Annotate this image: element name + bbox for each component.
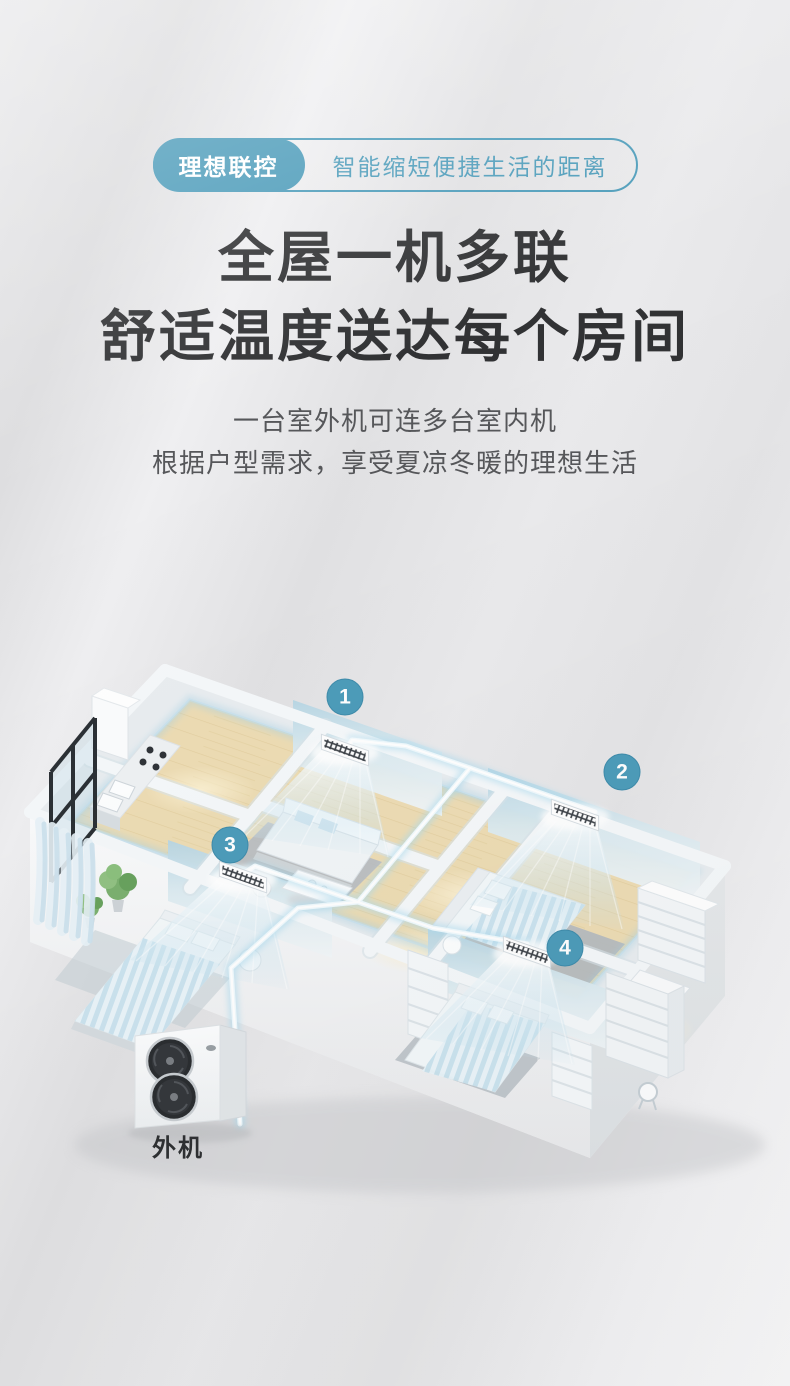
chair [639,1083,657,1101]
feature-pill-tag: 理想联控 [153,139,305,191]
page-subtitle-line1: 一台室外机可连多台室内机 [0,400,790,442]
house-illustration: 1 2 3 4 [0,600,790,1360]
indoor-unit-2 [541,799,609,831]
badge-bar: 理想联控 智能缩短便捷生活的距离 [0,0,790,192]
outdoor-unit-label: 外机 [152,1134,204,1162]
brand-mark [206,1045,216,1051]
page-title: 全屋一机多联 舒适温度送达每个房间 [0,218,790,376]
humidifier [443,936,461,954]
feature-pill: 理想联控 智能缩短便捷生活的距离 [153,138,638,192]
unit-badge-2: 2 [604,754,640,790]
outdoor-fan-bottom [151,1074,197,1120]
curtains [38,822,93,941]
unit-badge-1: 1 [327,679,363,715]
unit-badge-3: 3 [212,827,248,863]
page-title-line1: 全屋一机多联 [0,218,790,297]
page-subtitle-line2: 根据户型需求，享受夏凉冬暖的理想生活 [0,442,790,484]
page-title-line2: 舒适温度送达每个房间 [0,297,790,376]
unit-badge-1-number: 1 [339,686,351,709]
unit-badge-2-number: 2 [616,761,628,784]
unit-badge-3-number: 3 [224,834,236,857]
page-subtitle: 一台室外机可连多台室内机 根据户型需求，享受夏凉冬暖的理想生活 [0,400,790,484]
promo-page: 理想联控 智能缩短便捷生活的距离 全屋一机多联 舒适温度送达每个房间 一台室外机… [0,0,790,1386]
feature-pill-tagline: 智能缩短便捷生活的距离 [305,140,636,190]
unit-badge-4: 4 [547,930,583,966]
unit-badge-4-number: 4 [559,937,571,960]
